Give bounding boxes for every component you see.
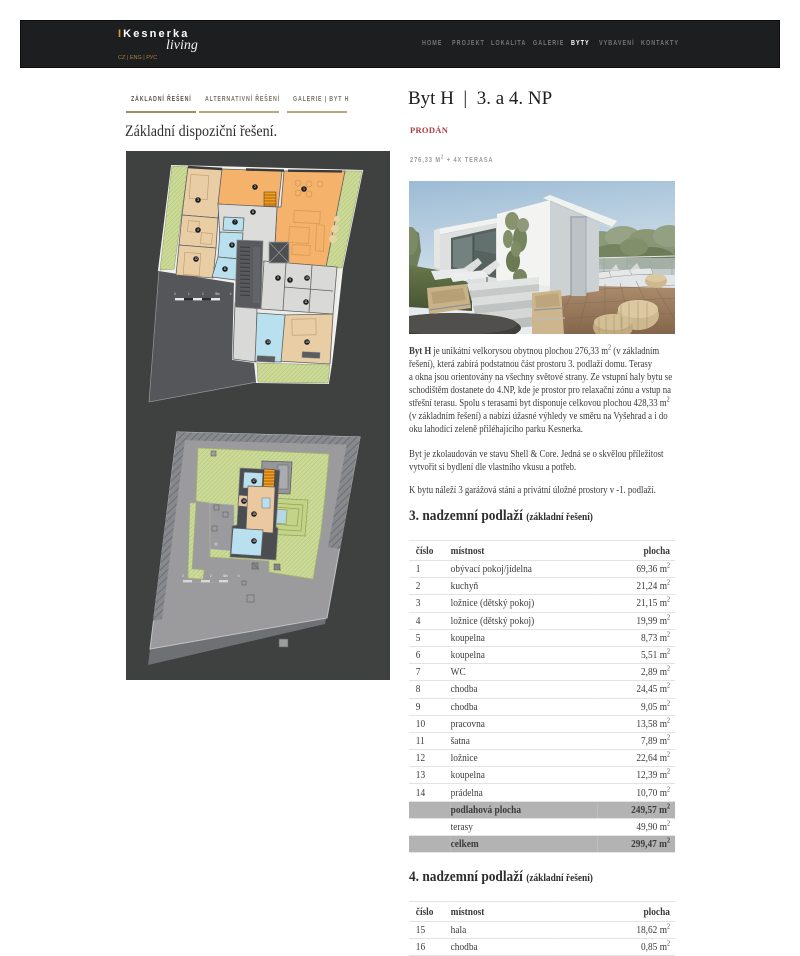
svg-text:9: 9 [289, 278, 291, 282]
svg-text:3: 3 [197, 198, 199, 202]
svg-text:2: 2 [254, 185, 256, 189]
svg-text:16: 16 [242, 499, 246, 503]
svg-text:17: 17 [252, 479, 256, 483]
svg-text:13: 13 [266, 340, 270, 344]
svg-text:14: 14 [305, 340, 309, 344]
svg-text:9: 9 [277, 276, 279, 280]
svg-text:4: 4 [197, 228, 199, 232]
svg-text:6: 6 [224, 267, 226, 271]
svg-text:15: 15 [252, 512, 256, 516]
svg-text:5m: 5m [223, 574, 228, 578]
svg-text:7: 7 [234, 220, 236, 224]
svg-text:5: 5 [231, 243, 233, 247]
svg-text:5m: 5m [215, 292, 220, 296]
svg-text:10: 10 [305, 276, 309, 280]
svg-text:0 1 2 3 4: 0 1 2 3 4 [174, 292, 237, 296]
svg-text:12: 12 [194, 257, 198, 261]
svg-text:18: 18 [252, 539, 256, 543]
svg-text:1: 1 [303, 187, 305, 191]
svg-text:8: 8 [252, 210, 254, 214]
svg-text:11: 11 [304, 300, 308, 304]
svg-text:0 1 2 3 4: 0 1 2 3 4 [182, 574, 245, 578]
